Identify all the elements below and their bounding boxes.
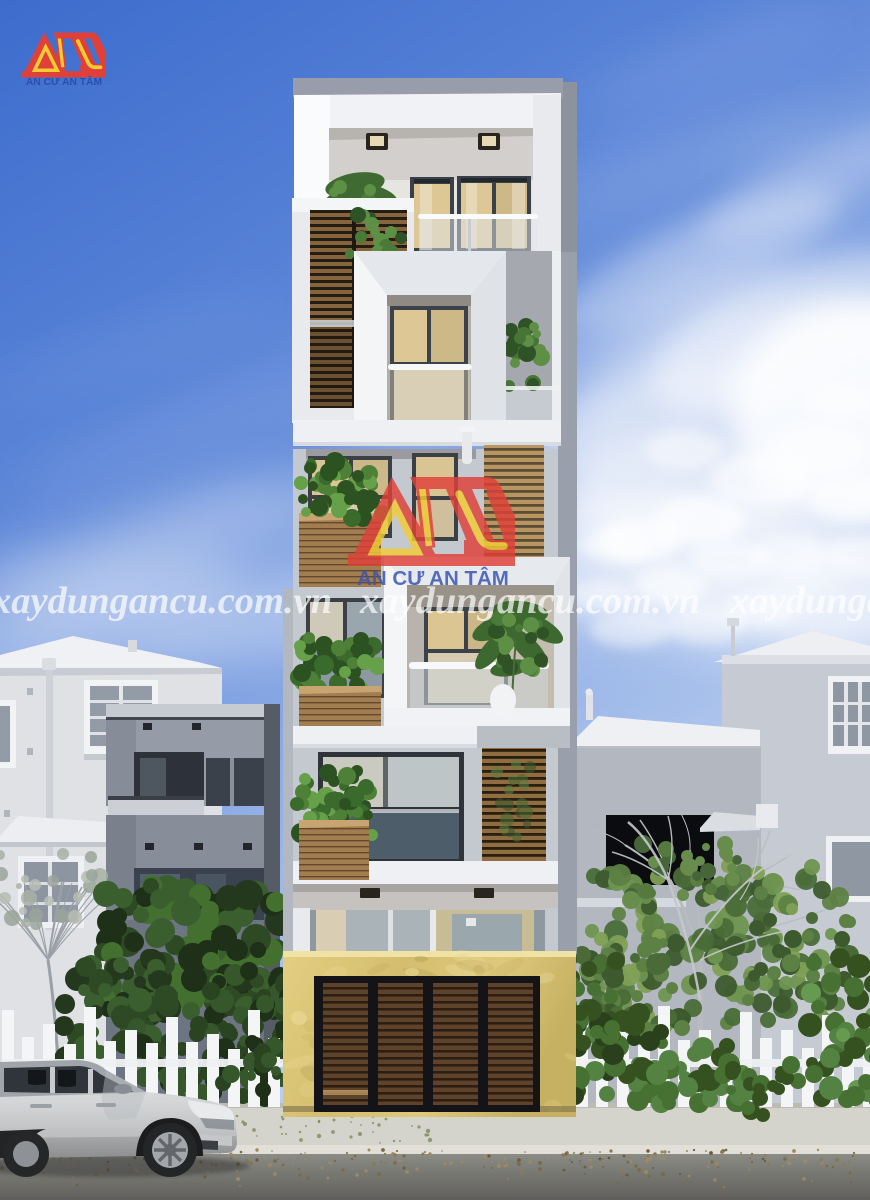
svg-text:xaydunga: xaydunga: [729, 580, 870, 622]
svg-text:xaydungancu.com.vn: xaydungancu.com.vn: [0, 580, 332, 622]
svg-text:xaydungancu.com.vn: xaydungancu.com.vn: [359, 580, 700, 622]
svg-text:AN CƯ AN TÂM: AN CƯ AN TÂM: [26, 75, 102, 88]
